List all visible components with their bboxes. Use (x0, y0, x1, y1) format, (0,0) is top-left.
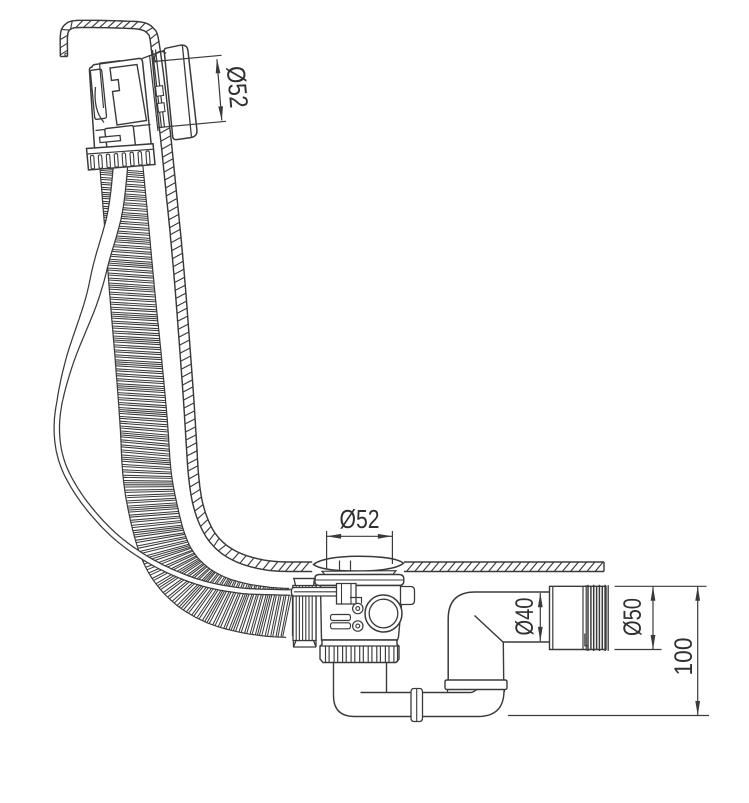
svg-text:Ø52: Ø52 (221, 65, 255, 109)
svg-text:Ø50: Ø50 (619, 598, 647, 636)
svg-text:Ø52: Ø52 (340, 504, 380, 534)
svg-text:Ø40: Ø40 (511, 598, 539, 636)
svg-text:100: 100 (670, 638, 698, 676)
